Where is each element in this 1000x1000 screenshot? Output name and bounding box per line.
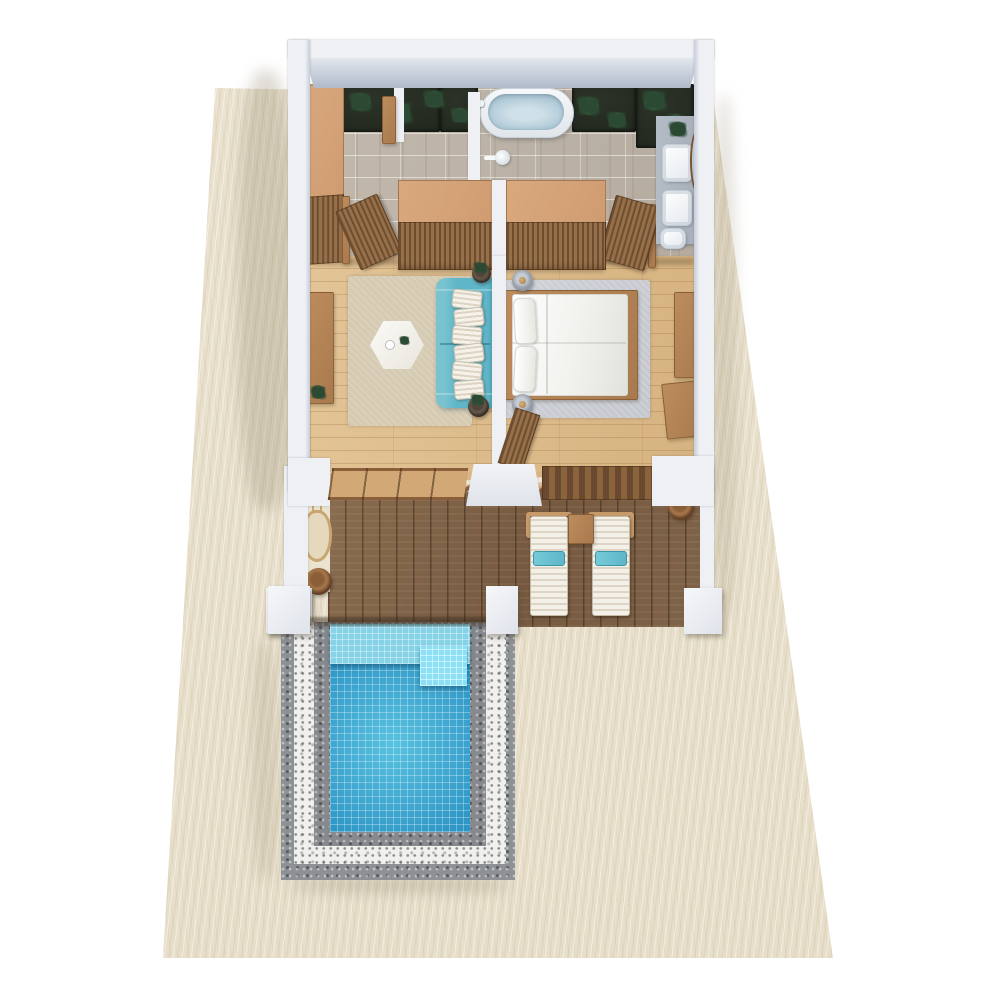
bed-pillow <box>513 345 537 392</box>
table-cup <box>385 340 395 350</box>
deck-pillar-right <box>684 588 722 634</box>
sun-lounger <box>530 516 568 616</box>
vanity-basin <box>662 144 692 182</box>
plant <box>472 260 490 276</box>
pool-pillar-right <box>486 586 518 634</box>
wall-right <box>694 40 714 492</box>
wall-left <box>288 40 310 492</box>
duvet-fold <box>546 294 548 394</box>
floor-plan-render <box>0 0 1000 1000</box>
pool-pillar-left <box>268 586 310 634</box>
pool-shadow-left <box>252 640 278 880</box>
shower-wood-panel <box>382 96 396 144</box>
plant <box>469 392 487 408</box>
plant <box>604 108 630 132</box>
plant <box>346 88 376 116</box>
shower-head <box>495 150 510 165</box>
wall-bottom-corner-right <box>652 456 714 506</box>
closet-divider <box>492 180 506 268</box>
toilet <box>660 228 686 249</box>
plant <box>574 92 604 120</box>
closet-top-living <box>398 180 494 224</box>
bathtub-water <box>488 94 564 130</box>
villa-shadow-right <box>712 95 736 615</box>
deck-threshold <box>466 464 542 506</box>
sun-lounger <box>592 516 630 616</box>
deck-edge-shadow <box>308 617 488 626</box>
wall-top-inner-face <box>306 58 698 88</box>
bedside-lamp <box>512 270 533 291</box>
deck-side-table <box>568 514 594 544</box>
wall-top <box>288 40 714 58</box>
pool-corner-step <box>420 646 467 686</box>
sliding-door-bedroom <box>542 466 654 500</box>
closet-front-bedroom <box>506 222 606 270</box>
pool-shadow-bottom <box>290 878 510 892</box>
vanity-basin <box>662 190 692 226</box>
lounger-pillow <box>595 551 627 566</box>
sliding-door-living <box>328 468 468 500</box>
bed-pillow <box>513 297 537 344</box>
table-plant <box>398 334 411 347</box>
counter-plant <box>666 118 690 140</box>
lounger-pillow <box>533 551 565 566</box>
floor-plant <box>308 382 328 402</box>
closet-top-bedroom <box>506 180 606 224</box>
shower-partition <box>468 92 480 182</box>
wall-bottom-corner-left <box>288 458 330 506</box>
villa-shadow-left <box>238 70 294 510</box>
